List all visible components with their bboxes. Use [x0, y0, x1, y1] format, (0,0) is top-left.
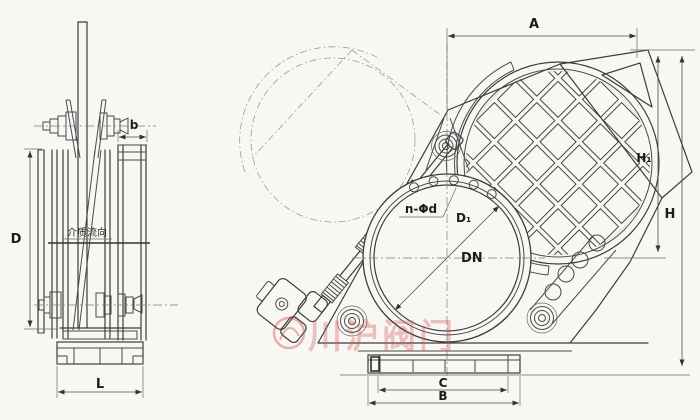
watermark-text: 川沪阀门 [308, 317, 456, 357]
dim-label-H: H [665, 207, 676, 222]
dim-label-A: A [529, 17, 539, 32]
valve-stem [66, 22, 106, 328]
dim-label-D: D [11, 232, 22, 247]
right-pivot-bolt [527, 303, 557, 333]
flow-direction-text: 介质流向 [67, 226, 107, 239]
anchor-bolt [371, 357, 379, 371]
drawing-sheet: 介质流向 D [0, 0, 700, 420]
valve-drawing: 介质流向 D [0, 0, 700, 420]
dim-label-L: L [96, 377, 104, 392]
side-view: 介质流向 [34, 22, 178, 364]
top-right-gusset [560, 50, 692, 198]
dimension-L: L [57, 366, 143, 398]
dim-label-H1: H₁ [636, 151, 651, 165]
label-n-phi-d: n-Φd [405, 202, 437, 216]
lower-gland-bolts [34, 292, 178, 318]
dimension-b: b [118, 118, 147, 142]
dim-label-C: C [439, 376, 448, 390]
side-base [57, 328, 143, 364]
dim-label-b: b [130, 118, 139, 132]
label-D1: D₁ [456, 211, 471, 225]
dimension-D: D [11, 149, 58, 329]
label-DN: DN [461, 251, 483, 266]
watermark: 川沪阀门 [274, 317, 456, 357]
dim-label-B: B [438, 389, 447, 403]
